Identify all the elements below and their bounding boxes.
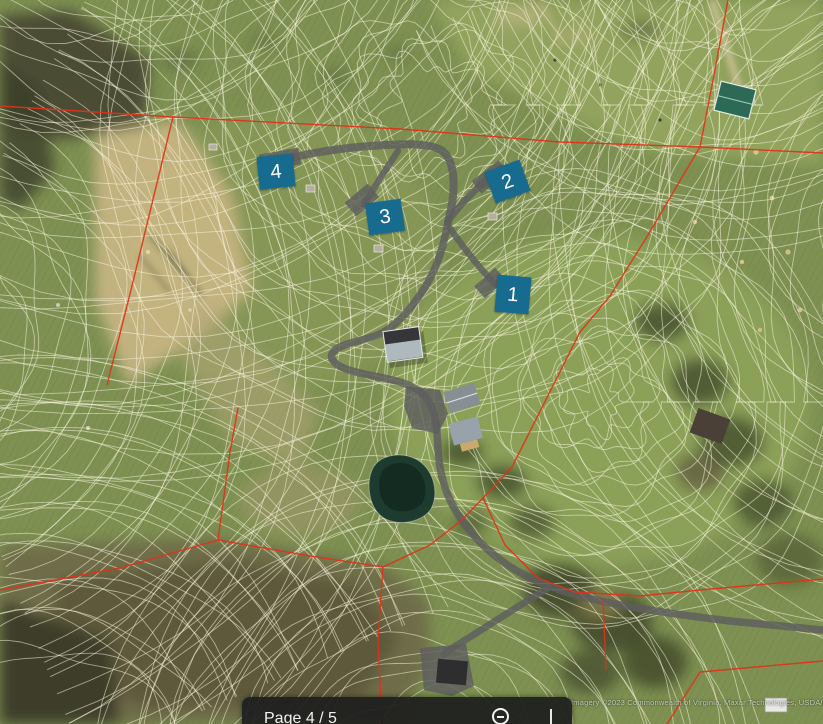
lot-marker-1: 1: [494, 275, 531, 315]
satellite-contour-map: [0, 0, 823, 724]
house-main: [383, 326, 428, 368]
pdf-viewer-toolbar[interactable]: Page 4 / 5: [242, 697, 572, 724]
page-indicator: Page 4 / 5: [242, 697, 337, 724]
house-south: [436, 659, 468, 686]
white-shed: [765, 698, 787, 712]
lot-marker-3: 3: [365, 199, 405, 236]
zoom-out-icon[interactable]: [492, 708, 509, 724]
pdf-map-page: 1 2 3 4 Imagery ©2023 Commonwealth of Vi…: [0, 0, 823, 724]
lot-marker-4: 4: [256, 153, 295, 190]
toolbar-divider: [550, 709, 552, 724]
